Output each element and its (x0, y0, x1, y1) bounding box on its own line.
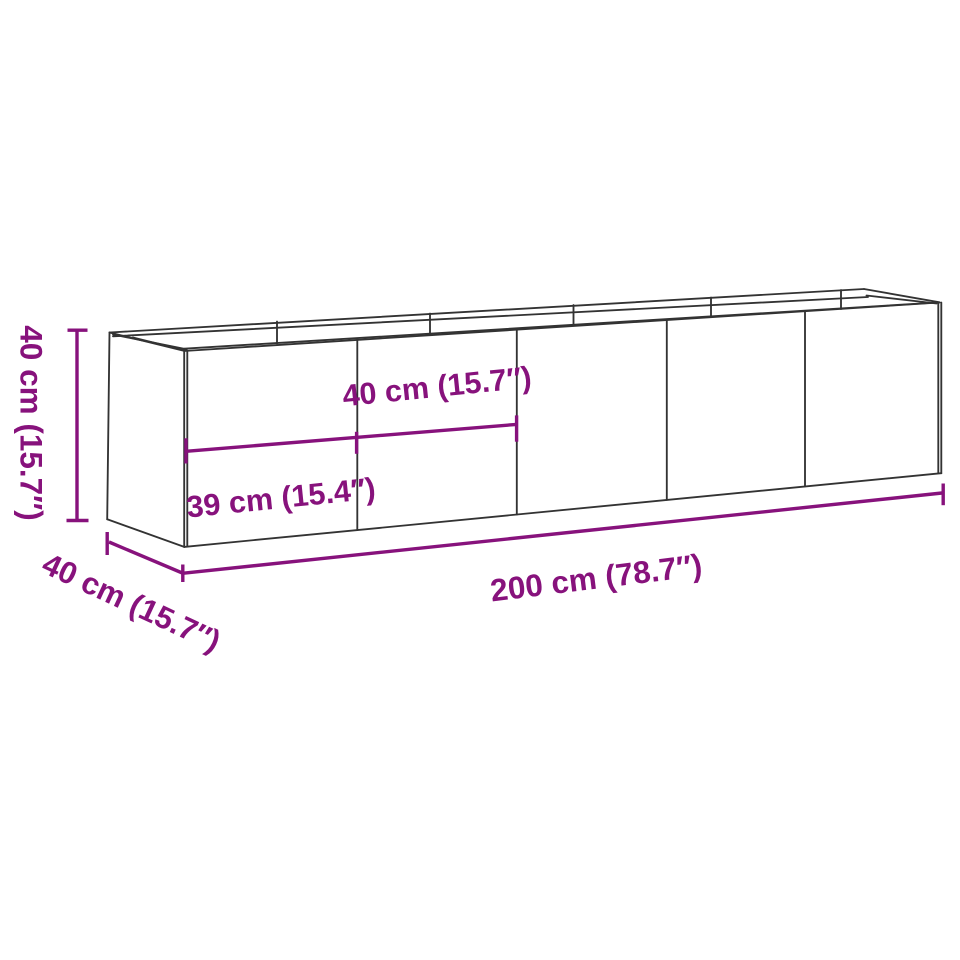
svg-text:40 cm (15.7″): 40 cm (15.7″) (14, 325, 50, 520)
svg-text:40 cm (15.7″): 40 cm (15.7″) (37, 546, 226, 659)
svg-text:39 cm (15.4″): 39 cm (15.4″) (185, 472, 377, 525)
svg-text:200 cm (78.7″): 200 cm (78.7″) (488, 547, 704, 609)
svg-text:40 cm (15.7″): 40 cm (15.7″) (341, 360, 533, 413)
